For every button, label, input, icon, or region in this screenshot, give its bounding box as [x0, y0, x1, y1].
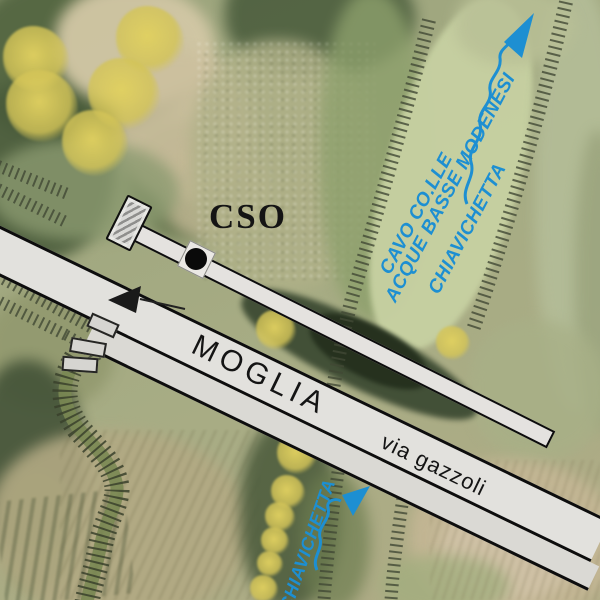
cso-label: CSO — [209, 197, 287, 237]
cso-node-dot-icon — [185, 248, 207, 270]
flow-arrow-icon — [504, 13, 534, 58]
road-direction-arrow-icon — [108, 286, 141, 313]
road-direction-arrow-line — [140, 299, 185, 309]
aerial-map: MOGLIA via gazzoli CSO CAVO CO.LLE ACQUE… — [0, 0, 600, 600]
flow-arrow-icon — [342, 486, 370, 516]
